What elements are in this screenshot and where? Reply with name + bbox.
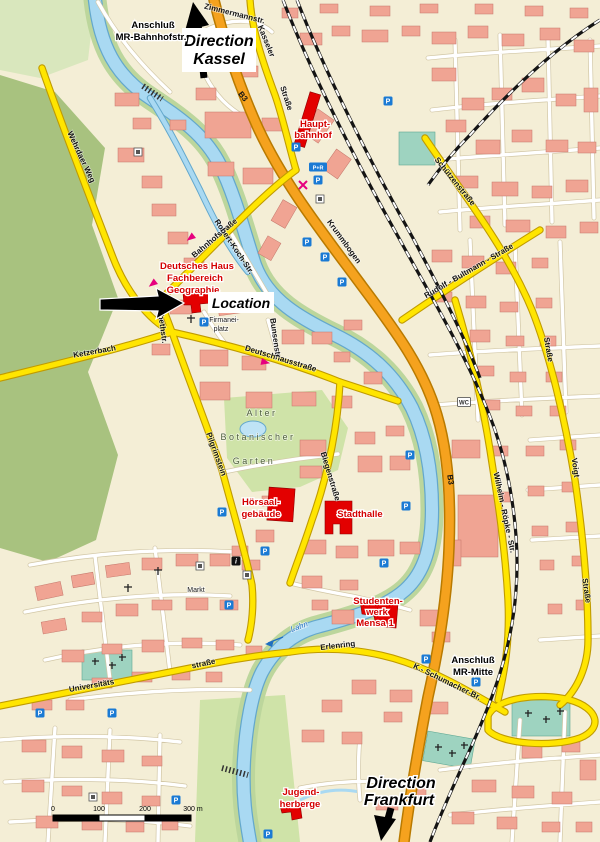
poi-symbol-icon bbox=[134, 148, 142, 156]
scale-tick: 100 bbox=[93, 806, 105, 813]
city-map: Zimmermannstr. Kasseler Straße Bahnhofst… bbox=[0, 0, 600, 842]
scale-bar: 0 100 200 300 m bbox=[51, 806, 203, 821]
anschluss-bahnhofstr-label: AnschlußMR-Bahnhofstr. bbox=[116, 20, 187, 43]
hauptbahnhof-label: Haupt-bahnhof bbox=[294, 119, 332, 141]
svg-text:P: P bbox=[110, 711, 115, 718]
stadthalle-label: Stadthalle bbox=[337, 509, 382, 520]
svg-text:P: P bbox=[340, 280, 345, 287]
frankfurt-arrowhead bbox=[374, 815, 396, 841]
map-canvas: Zimmermannstr. Kasseler Straße Bahnhofst… bbox=[0, 0, 600, 842]
wc-icon: WC bbox=[458, 398, 471, 407]
poi-symbol-icon bbox=[243, 571, 251, 579]
svg-text:P: P bbox=[263, 549, 268, 556]
svg-text:P: P bbox=[305, 240, 310, 247]
svg-text:WC: WC bbox=[459, 401, 470, 407]
svg-text:P: P bbox=[266, 832, 271, 839]
park-and-ride-icon: P+R bbox=[309, 163, 327, 172]
svg-text:P: P bbox=[408, 453, 413, 460]
scale-tick: 200 bbox=[139, 806, 151, 813]
svg-text:P: P bbox=[227, 603, 232, 610]
hoersaalgebaeude-label: Hörsaal-gebäude bbox=[241, 497, 280, 520]
deutsches-haus-label: Deutsches HausFachbereichGeographie bbox=[160, 261, 234, 296]
svg-text:P: P bbox=[323, 255, 328, 262]
cemetery-area bbox=[423, 731, 475, 769]
svg-text:P: P bbox=[38, 711, 43, 718]
poi-symbol-icon bbox=[89, 793, 97, 801]
info-icon: i bbox=[232, 557, 241, 566]
svg-text:P: P bbox=[474, 680, 479, 687]
anschluss-mr-mitte-label: AnschlußMR-Mitte bbox=[451, 655, 494, 678]
svg-text:P: P bbox=[174, 798, 179, 805]
svg-text:P: P bbox=[424, 657, 429, 664]
scale-tick: 300 m bbox=[183, 806, 203, 813]
poi-symbol-icon bbox=[316, 195, 324, 203]
markt-label: Markt bbox=[187, 587, 205, 594]
b3-road-ref: B3 bbox=[445, 474, 455, 486]
svg-text:P: P bbox=[294, 145, 299, 152]
location-label: Location bbox=[212, 295, 270, 311]
svg-text:P: P bbox=[220, 510, 225, 517]
svg-text:P: P bbox=[404, 504, 409, 511]
svg-text:P+R: P+R bbox=[313, 166, 324, 172]
svg-text:P: P bbox=[386, 99, 391, 106]
poi-symbol-icon bbox=[196, 562, 204, 570]
direction-frankfurt-label: DirectionFrankfurt bbox=[364, 775, 436, 809]
scale-tick: 0 bbox=[51, 806, 55, 813]
direction-kassel-label: DirectionKassel bbox=[184, 33, 254, 68]
jugendherberge-label: Jugend-herberge bbox=[280, 787, 321, 810]
svg-text:P: P bbox=[316, 178, 321, 185]
svg-text:P: P bbox=[202, 320, 207, 327]
svg-text:P: P bbox=[382, 561, 387, 568]
